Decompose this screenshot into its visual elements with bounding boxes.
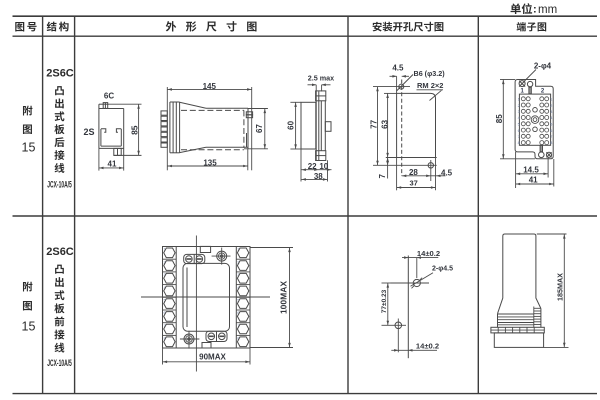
svg-text::: : bbox=[533, 4, 537, 16]
svg-text:15: 15 bbox=[22, 141, 36, 155]
svg-text:135: 135 bbox=[203, 158, 217, 167]
svg-text:1: 1 bbox=[521, 88, 525, 94]
svg-text:60: 60 bbox=[287, 120, 296, 129]
svg-text:77: 77 bbox=[369, 119, 378, 128]
svg-text:63: 63 bbox=[381, 119, 390, 128]
svg-text:28: 28 bbox=[409, 168, 418, 177]
svg-text:4.5: 4.5 bbox=[441, 169, 453, 178]
svg-text:41: 41 bbox=[108, 160, 117, 169]
svg-text:JCX-10A/5: JCX-10A/5 bbox=[47, 180, 72, 191]
svg-text:38: 38 bbox=[314, 172, 323, 181]
svg-text:67: 67 bbox=[255, 124, 264, 133]
svg-text:14.5: 14.5 bbox=[523, 165, 539, 174]
svg-text:2S6C: 2S6C bbox=[46, 68, 74, 80]
svg-text:6C: 6C bbox=[104, 91, 114, 100]
svg-text:4.5: 4.5 bbox=[392, 63, 404, 72]
svg-text:RM 2×2: RM 2×2 bbox=[417, 81, 443, 90]
svg-text:2: 2 bbox=[541, 88, 545, 94]
svg-text:8: 8 bbox=[518, 140, 521, 145]
svg-text:2S: 2S bbox=[83, 127, 94, 137]
svg-text:85: 85 bbox=[130, 125, 140, 135]
svg-text:145: 145 bbox=[203, 82, 217, 91]
svg-text:2.5 max: 2.5 max bbox=[308, 74, 334, 83]
svg-text:10: 10 bbox=[319, 162, 328, 171]
svg-text:B6 (φ3.2): B6 (φ3.2) bbox=[414, 69, 446, 78]
svg-text:JCX-10A/5: JCX-10A/5 bbox=[47, 358, 72, 369]
svg-text:77±0.23: 77±0.23 bbox=[381, 289, 388, 313]
svg-text:2: 2 bbox=[518, 103, 521, 108]
svg-text:2S6C: 2S6C bbox=[46, 246, 74, 258]
svg-text:2-φ4.5: 2-φ4.5 bbox=[432, 265, 453, 272]
svg-text:14±0.2: 14±0.2 bbox=[416, 341, 439, 350]
svg-text:4: 4 bbox=[518, 115, 521, 120]
svg-text:41: 41 bbox=[529, 176, 538, 185]
svg-text:15: 15 bbox=[22, 320, 36, 334]
svg-text:100MAX: 100MAX bbox=[279, 281, 289, 314]
svg-text:7: 7 bbox=[378, 173, 387, 178]
svg-text:6: 6 bbox=[518, 128, 521, 133]
svg-text:3: 3 bbox=[518, 109, 521, 114]
svg-text:37: 37 bbox=[410, 179, 418, 188]
svg-text:1: 1 bbox=[518, 97, 521, 102]
svg-text:7: 7 bbox=[518, 134, 521, 139]
svg-text:185MAX: 185MAX bbox=[556, 273, 565, 301]
svg-text:mm: mm bbox=[538, 4, 557, 16]
svg-text:22: 22 bbox=[308, 162, 317, 171]
svg-text:2-φ4: 2-φ4 bbox=[534, 62, 552, 71]
svg-text:5: 5 bbox=[518, 122, 521, 127]
svg-text:90MAX: 90MAX bbox=[199, 353, 226, 362]
svg-text:85: 85 bbox=[495, 114, 504, 123]
